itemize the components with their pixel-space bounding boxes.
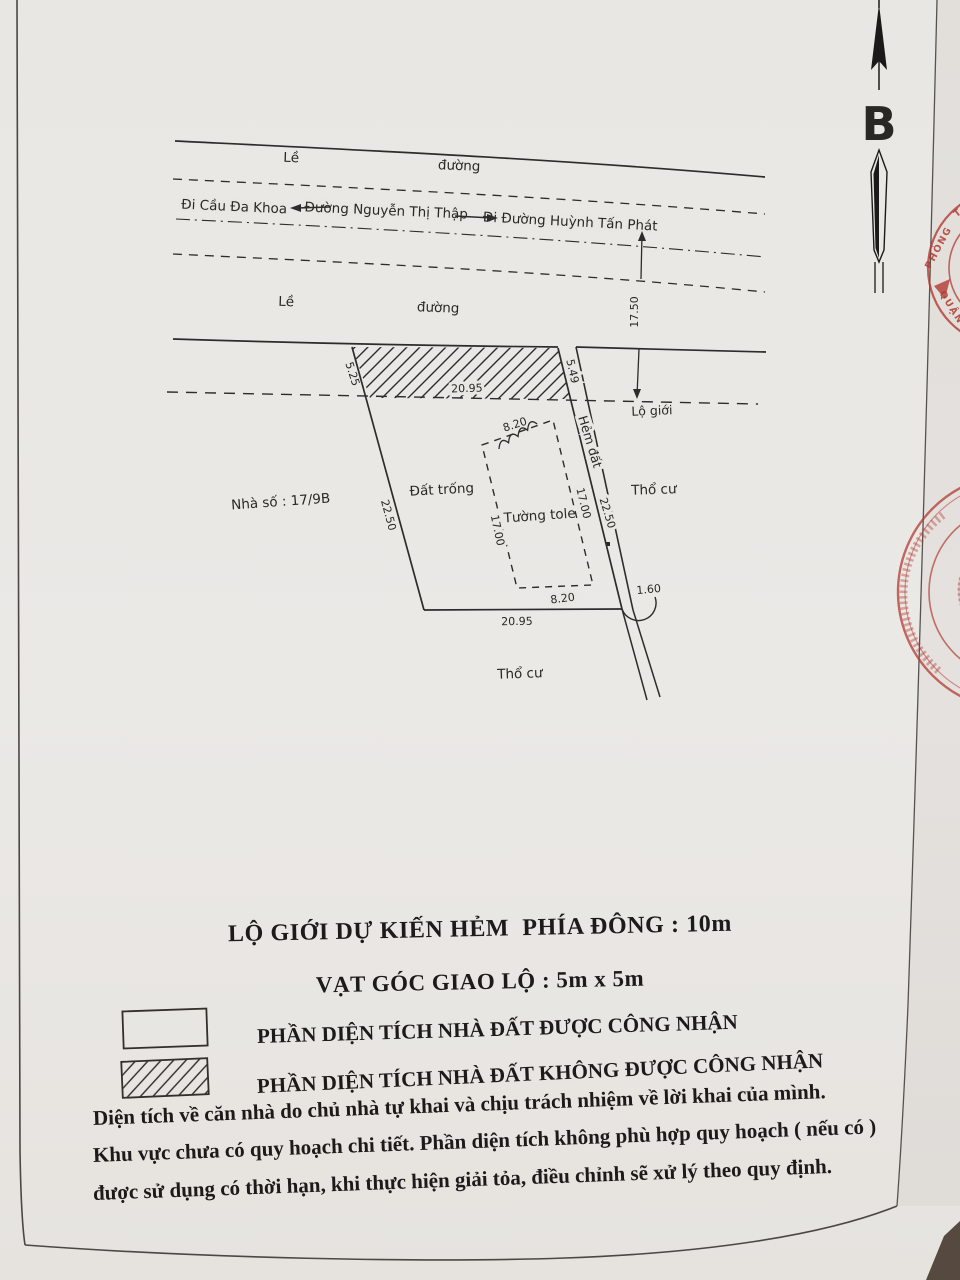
road-bottom-edge-left (173, 339, 558, 347)
legend-swatches (121, 1009, 208, 1098)
legend-swatch-not-recognized (121, 1058, 208, 1098)
alley-label: Hẻm đất (575, 414, 605, 470)
tole-wall-dashed-outline (482, 420, 593, 588)
dim-top-width: 20.95 (451, 381, 483, 395)
alley-dim-dot (606, 542, 610, 546)
carriageway-label-bottom: đường (417, 299, 460, 316)
dim-bottom-width: 20.95 (501, 615, 533, 629)
scanned-survey-document: B Lề đường Đi Cầu Đa Khoa Đường Nguyễn T… (0, 0, 960, 1280)
alley-left-extension (622, 609, 647, 700)
sidewalk-label-top: Lề (283, 149, 299, 167)
setback-label: Lộ giới (631, 402, 673, 418)
plot-bottom-edge (424, 609, 622, 610)
legend-swatch-recognized (122, 1009, 207, 1049)
alley-right-extension (633, 610, 660, 697)
plot-labels: Nhà số : 17/9B Đất trống Tường tole Hẻm … (231, 402, 679, 683)
scan-corner-shadow (926, 1221, 960, 1280)
road-width-value: 17.50 (628, 296, 641, 328)
vacant-land-label: Đất trống (409, 479, 474, 499)
street-name-label: Đường Nguyễn Thị Thập (304, 198, 468, 222)
residential-label-right: Thổ cư (630, 480, 678, 499)
dim-wall-bottom: 8.20 (550, 591, 576, 607)
carriageway-label-top: đường (438, 157, 481, 174)
north-arrow-head (871, 4, 887, 70)
alley-right-edge (576, 347, 633, 610)
road-centerline (176, 219, 765, 257)
road-dashed-line-bottom (173, 254, 765, 292)
road-bottom-edge-right (576, 347, 766, 352)
dim-corner-cut: 1.60 (636, 582, 662, 597)
house-number-label: Nhà số : 17/9B (231, 490, 331, 514)
road-labels: Lề đường Đi Cầu Đa Khoa Đường Nguyễn Thị… (181, 149, 658, 317)
sidewalk-label-bottom: Lề (278, 293, 294, 311)
corner-cut-arc (622, 597, 656, 621)
residential-label-bottom: Thổ cư (496, 664, 544, 683)
tole-wall-label: Tường tole (502, 506, 576, 527)
dim-alley-side: 22.50 (597, 496, 619, 530)
direction-right-label: Đi Đường Huỳnh Tấn Phát (482, 209, 658, 234)
road-width-dimension: 17.50 (628, 231, 646, 399)
north-arrow: B (861, 0, 896, 293)
dim-wall-top: 8.20 (501, 415, 528, 435)
direction-left-label: Đi Cầu Đa Khoa (181, 197, 288, 218)
north-label: B (861, 97, 896, 151)
